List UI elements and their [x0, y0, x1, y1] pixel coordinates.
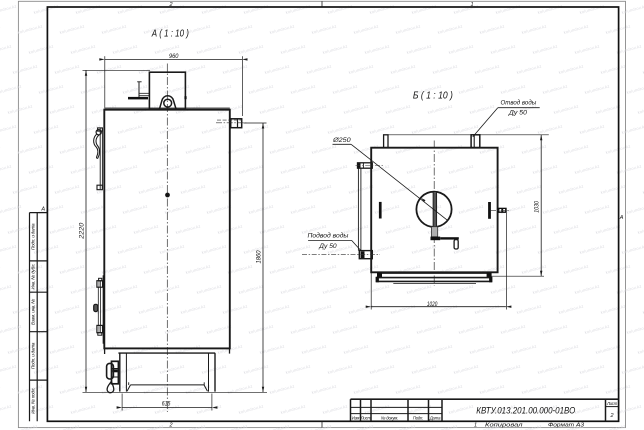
svg-text:Лист: Лист [606, 401, 618, 406]
svg-text:kolundrov.kz: kolundrov.kz [0, 363, 17, 374]
svg-text:2: 2 [168, 423, 172, 429]
svg-text:kolundrov.kz: kolundrov.kz [0, 23, 1, 34]
svg-text:2220: 2220 [79, 222, 86, 240]
svg-text:Ду 50: Ду 50 [508, 110, 528, 116]
svg-text:kolundrov.kz: kolundrov.kz [626, 323, 644, 334]
svg-text:kolundrov.kz: kolundrov.kz [0, 383, 1, 394]
svg-text:kolundrov.kz: kolundrov.kz [0, 283, 12, 294]
svg-text:Лист: Лист [360, 416, 372, 421]
svg-text:kolundrov.kz: kolundrov.kz [0, 3, 17, 14]
svg-text:Формат А3: Формат А3 [548, 422, 584, 428]
svg-text:Отвод воды: Отвод воды [501, 100, 537, 106]
svg-text:1: 1 [474, 423, 477, 429]
svg-text:kolundrov.kz: kolundrov.kz [626, 83, 644, 94]
svg-text:kolundrov.kz: kolundrov.kz [0, 163, 12, 174]
svg-text:2: 2 [168, 2, 172, 8]
svg-text:№ докум.: № докум. [381, 416, 398, 421]
svg-text:Копировал: Копировал [485, 422, 523, 428]
svg-text:Изм: Изм [352, 416, 360, 421]
svg-text:Инв. № подл.: Инв. № подл. [31, 388, 36, 414]
svg-text:КВТУ.013.201.00.000-01ВО: КВТУ.013.201.00.000-01ВО [476, 405, 576, 416]
svg-text:kolundrov.kz: kolundrov.kz [0, 123, 17, 134]
svg-text:А: А [619, 215, 624, 221]
svg-text:Б ( 1 : 10 ): Б ( 1 : 10 ) [413, 90, 453, 101]
svg-text:kolundrov.kz: kolundrov.kz [626, 203, 644, 214]
svg-text:kolundrov.kz: kolundrov.kz [0, 243, 17, 254]
svg-text:Подп.: Подп. [413, 416, 423, 421]
svg-text:kolundrov.kz: kolundrov.kz [637, 343, 644, 354]
svg-text:А: А [40, 206, 45, 212]
svg-text:kolundrov.kz: kolundrov.kz [637, 103, 644, 114]
svg-text:1860: 1860 [256, 250, 263, 263]
svg-text:2: 2 [609, 413, 613, 419]
svg-text:Подвод воды: Подвод воды [308, 233, 350, 239]
svg-text:kolundrov.kz: kolundrov.kz [0, 43, 12, 54]
svg-text:kolundrov.kz: kolundrov.kz [0, 143, 1, 154]
svg-text:Подп. и дата: Подп. и дата [31, 342, 36, 369]
svg-text:615: 615 [162, 400, 171, 407]
svg-text:Ø250: Ø250 [332, 137, 351, 144]
svg-text:Взам. инв. №: Взам. инв. № [31, 299, 36, 325]
svg-text:kolundrov.kz: kolundrov.kz [637, 223, 644, 234]
svg-text:Инв. № дубл.: Инв. № дубл. [31, 264, 36, 290]
svg-text:1: 1 [470, 2, 473, 8]
svg-text:Ду 50: Ду 50 [318, 244, 337, 250]
svg-text:Дата: Дата [429, 416, 441, 421]
svg-text:960: 960 [169, 53, 179, 60]
svg-text:1030: 1030 [534, 201, 541, 213]
svg-text:А ( 1 : 10 ): А ( 1 : 10 ) [151, 29, 189, 40]
svg-text:kolundrov.kz: kolundrov.kz [0, 403, 12, 414]
svg-text:kolundrov.kz: kolundrov.kz [0, 263, 1, 274]
svg-text:1020: 1020 [427, 301, 438, 308]
svg-text:Подп. и дата: Подп. и дата [31, 223, 36, 250]
